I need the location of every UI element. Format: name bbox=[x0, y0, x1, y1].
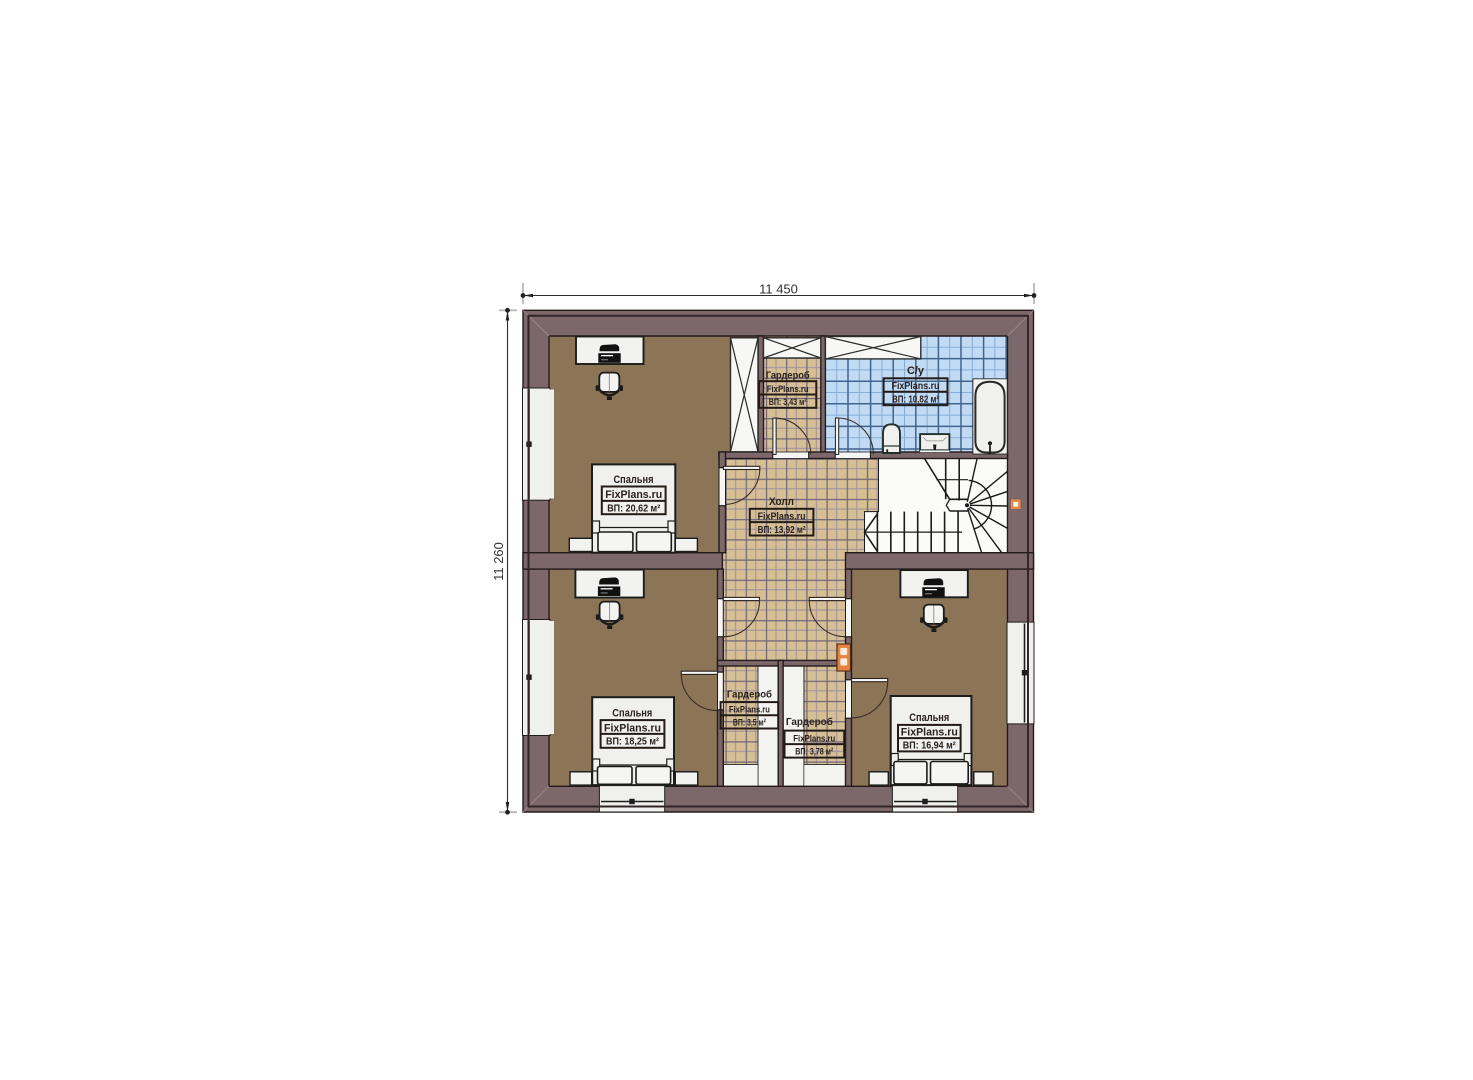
svg-text:FixPlans.ru: FixPlans.ru bbox=[729, 705, 770, 716]
svg-text:FixPlans.ru: FixPlans.ru bbox=[901, 727, 958, 739]
svg-text:Спальня: Спальня bbox=[614, 474, 654, 486]
svg-text:ВП: 18,25 м²: ВП: 18,25 м² bbox=[606, 737, 659, 748]
svg-text:Гардероб: Гардероб bbox=[727, 689, 772, 701]
svg-text:FixPlans.ru: FixPlans.ru bbox=[793, 734, 835, 745]
svg-text:ВП: 10,82 м²: ВП: 10,82 м² bbox=[892, 394, 940, 405]
svg-text:Холл: Холл bbox=[769, 496, 794, 508]
svg-text:ВП: 16,94 м²: ВП: 16,94 м² bbox=[903, 741, 956, 752]
svg-text:FixPlans.ru: FixPlans.ru bbox=[605, 489, 662, 501]
svg-text:11 450: 11 450 bbox=[759, 281, 798, 296]
svg-text:FixPlans.ru: FixPlans.ru bbox=[604, 722, 661, 734]
svg-text:FixPlans.ru: FixPlans.ru bbox=[767, 384, 809, 395]
svg-text:Спальня: Спальня bbox=[909, 712, 949, 724]
svg-text:11 260: 11 260 bbox=[491, 542, 506, 581]
svg-text:FixPlans.ru: FixPlans.ru bbox=[892, 381, 940, 392]
svg-text:ВП: 3,5 м²: ВП: 3,5 м² bbox=[733, 718, 766, 728]
svg-text:Спальня: Спальня bbox=[612, 707, 652, 719]
svg-text:ВП: 13,92 м²: ВП: 13,92 м² bbox=[758, 525, 807, 536]
svg-text:ВП: 3,43 м²: ВП: 3,43 м² bbox=[769, 397, 807, 407]
svg-text:Гардероб: Гардероб bbox=[786, 716, 833, 728]
svg-text:Гардероб: Гардероб bbox=[766, 370, 810, 382]
svg-text:С/у: С/у bbox=[907, 365, 924, 377]
svg-text:FixPlans.ru: FixPlans.ru bbox=[758, 512, 806, 523]
svg-text:ВП: 20,62 м²: ВП: 20,62 м² bbox=[607, 503, 660, 514]
svg-text:ВП: 3,78 м²: ВП: 3,78 м² bbox=[795, 747, 833, 757]
